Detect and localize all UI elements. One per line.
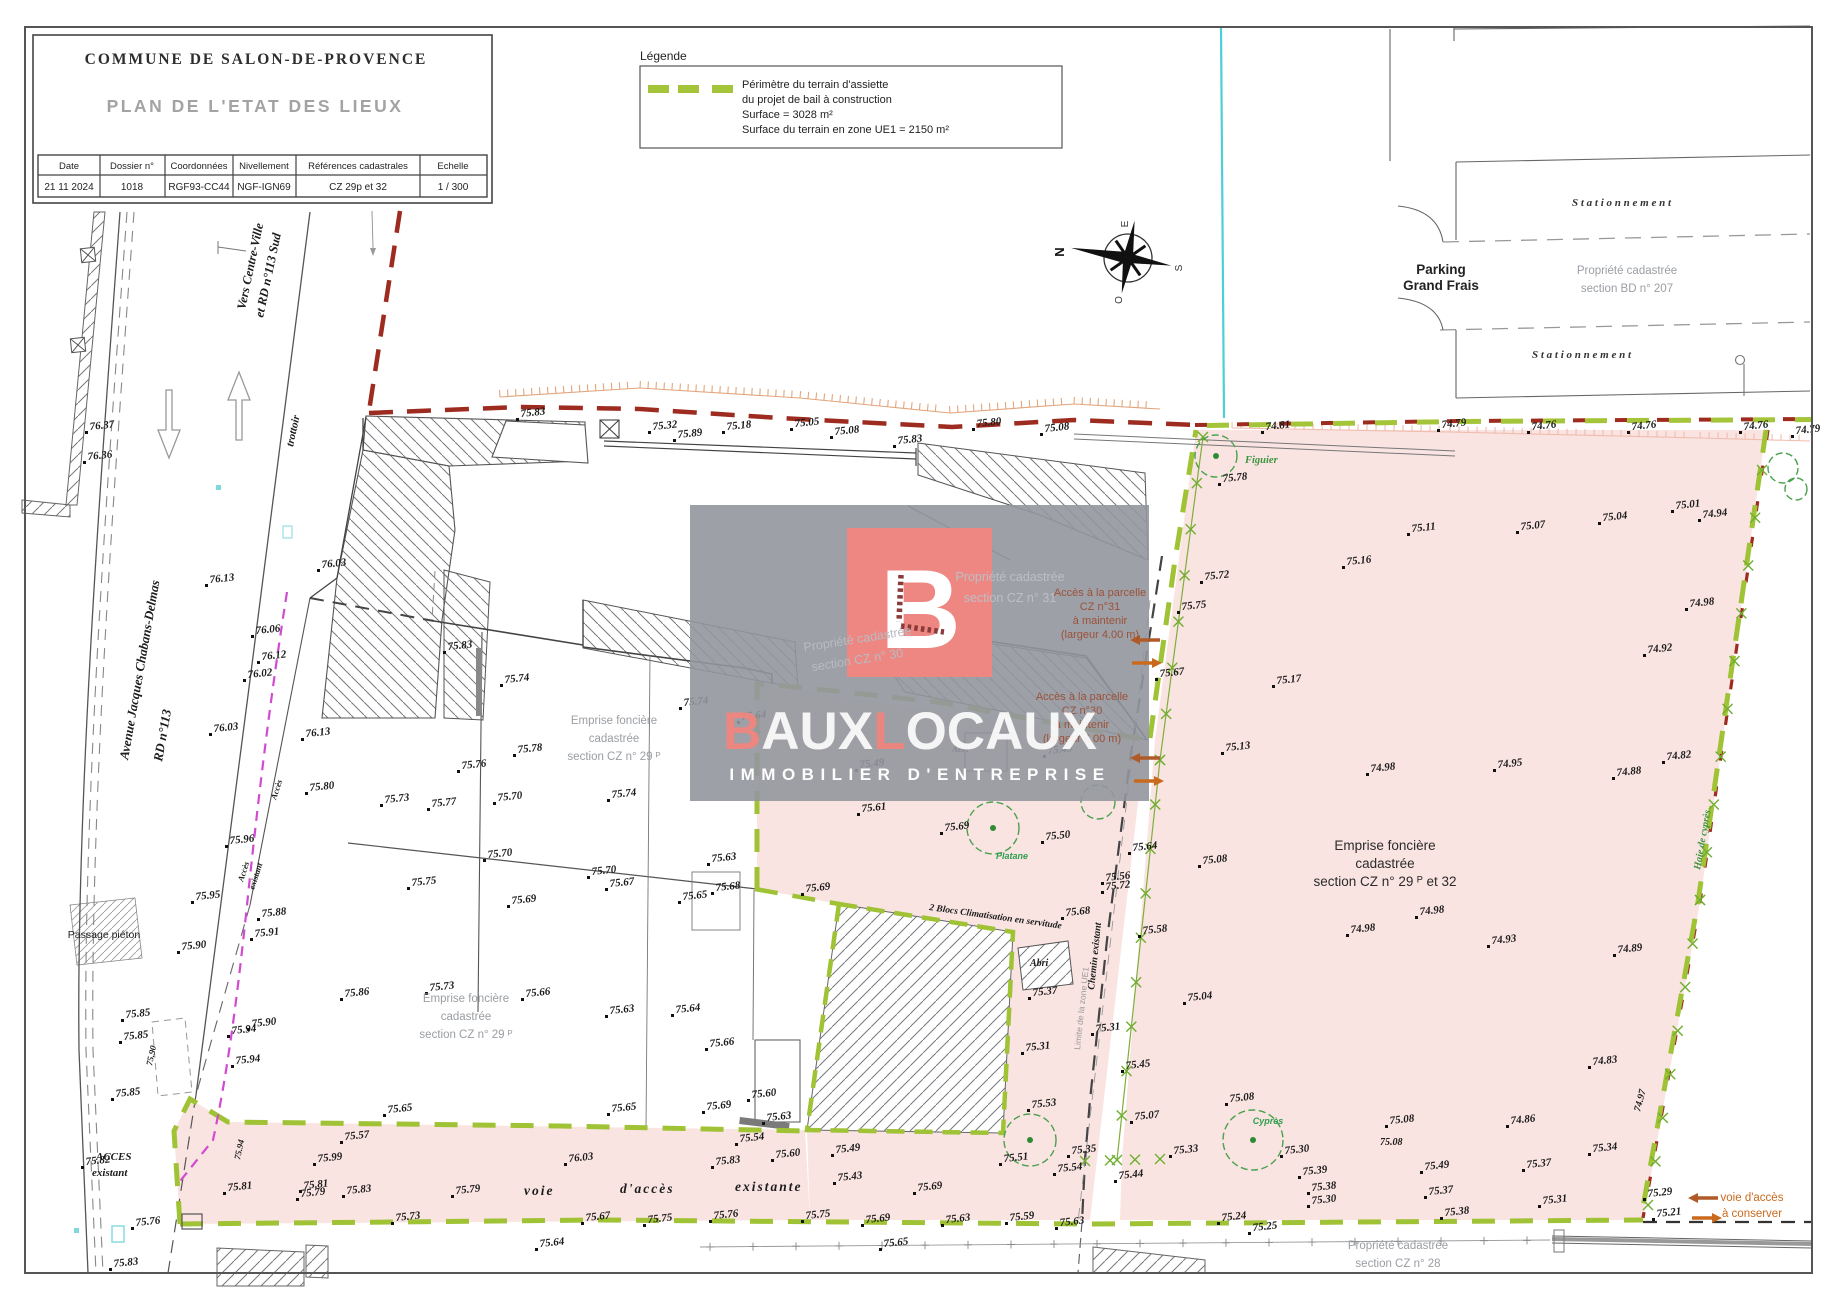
svg-text:Coordonnées: Coordonnées: [170, 161, 227, 172]
svg-text:Date: Date: [59, 161, 79, 172]
svg-text:Dossier n°: Dossier n°: [110, 161, 154, 172]
svg-text:Platane: Platane: [996, 851, 1028, 861]
svg-text:1 / 300: 1 / 300: [438, 182, 469, 193]
svg-text:E: E: [1120, 220, 1131, 227]
svg-text:voie d'accès: voie d'accès: [1721, 1192, 1784, 1204]
svg-text:voie: voie: [524, 1183, 555, 1198]
svg-text:Emprise foncière: Emprise foncière: [571, 715, 657, 727]
svg-text:section CZ n° 31: section CZ n° 31: [964, 591, 1057, 605]
svg-text:Légende: Légende: [640, 49, 687, 63]
svg-text:section CZ n° 29 ᴾ: section CZ n° 29 ᴾ: [567, 751, 660, 763]
svg-text:à conserver: à conserver: [1722, 1208, 1782, 1220]
svg-text:Grand Frais: Grand Frais: [1403, 278, 1479, 293]
svg-text:S t a t i o n n e m e n t: S t a t i o n n e m e n t: [1532, 349, 1632, 361]
svg-text:N: N: [1052, 247, 1067, 256]
svg-text:Abri: Abri: [1029, 958, 1049, 969]
svg-text:S: S: [1174, 264, 1185, 271]
svg-text:75.08: 75.08: [1380, 1137, 1403, 1148]
svg-text:à maintenir: à maintenir: [1073, 615, 1128, 627]
svg-text:RGF93-CC44: RGF93-CC44: [168, 182, 230, 193]
svg-text:Nivellement: Nivellement: [239, 161, 289, 172]
svg-text:1018: 1018: [121, 182, 144, 193]
svg-text:d'accès: d'accès: [620, 1181, 674, 1196]
svg-text:75.11: 75.11: [1411, 521, 1436, 535]
svg-text:Emprise foncière: Emprise foncière: [1334, 838, 1435, 853]
svg-text:section BD n° 207: section BD n° 207: [1581, 283, 1673, 295]
svg-text:Figuier: Figuier: [1244, 455, 1279, 466]
svg-text:COMMUNE DE SALON-DE-PROVENCE: COMMUNE DE SALON-DE-PROVENCE: [85, 51, 428, 68]
svg-text:Références cadastrales: Références cadastrales: [308, 161, 408, 172]
svg-text:Surface du terrain en zone UE1: Surface du terrain en zone UE1 = 2150 m²: [742, 124, 949, 136]
svg-text:existant: existant: [92, 1167, 128, 1179]
svg-text:Cyprès: Cyprès: [1253, 1116, 1284, 1126]
svg-text:section CZ n° 29 ᴾ et 32: section CZ n° 29 ᴾ et 32: [1313, 874, 1456, 889]
svg-text:O: O: [1114, 296, 1125, 304]
svg-text:section CZ n° 28: section CZ n° 28: [1355, 1258, 1440, 1270]
svg-text:cadastrée: cadastrée: [1355, 856, 1414, 871]
svg-text:IMMOBILIER D'ENTREPRISE: IMMOBILIER D'ENTREPRISE: [729, 765, 1110, 784]
svg-text:section CZ n° 29 ᴾ: section CZ n° 29 ᴾ: [419, 1029, 512, 1041]
svg-text:Emprise foncière: Emprise foncière: [423, 993, 509, 1005]
svg-text:Propriété cadastrée: Propriété cadastrée: [1577, 265, 1677, 277]
svg-text:Surface = 3028 m²: Surface = 3028 m²: [742, 109, 833, 121]
svg-text:Passage piéton: Passage piéton: [68, 929, 141, 941]
svg-text:(largeur 4.00 m): (largeur 4.00 m): [1061, 629, 1139, 641]
svg-text:existante: existante: [735, 1179, 803, 1194]
svg-text:Propriété cadastrée: Propriété cadastrée: [955, 570, 1064, 584]
svg-text:cadastrée: cadastrée: [589, 733, 640, 745]
svg-text:Accès à la parcelle: Accès à la parcelle: [1054, 587, 1146, 599]
svg-text:du projet de bail à constructi: du projet de bail à construction: [742, 94, 892, 106]
svg-text:NGF-IGN69: NGF-IGN69: [237, 182, 291, 193]
svg-text:Parking: Parking: [1416, 262, 1466, 277]
svg-text:cadastrée: cadastrée: [441, 1011, 492, 1023]
svg-text:Périmètre du terrain d'assiett: Périmètre du terrain d'assiette: [742, 79, 888, 91]
svg-text:Propriété cadastrée: Propriété cadastrée: [1348, 1240, 1448, 1252]
svg-text:Echelle: Echelle: [437, 161, 468, 172]
svg-text:CZ n°31: CZ n°31: [1080, 601, 1120, 613]
svg-text:S t a t i o n n e m e n t: S t a t i o n n e m e n t: [1572, 197, 1672, 209]
svg-text:21 11 2024: 21 11 2024: [44, 182, 94, 193]
svg-text:BAUXLOCAUX: BAUXLOCAUX: [723, 702, 1097, 761]
svg-text:CZ 29p et 32: CZ 29p et 32: [329, 182, 387, 193]
svg-text:PLAN DE L'ETAT DES LIEUX: PLAN DE L'ETAT DES LIEUX: [107, 96, 404, 116]
